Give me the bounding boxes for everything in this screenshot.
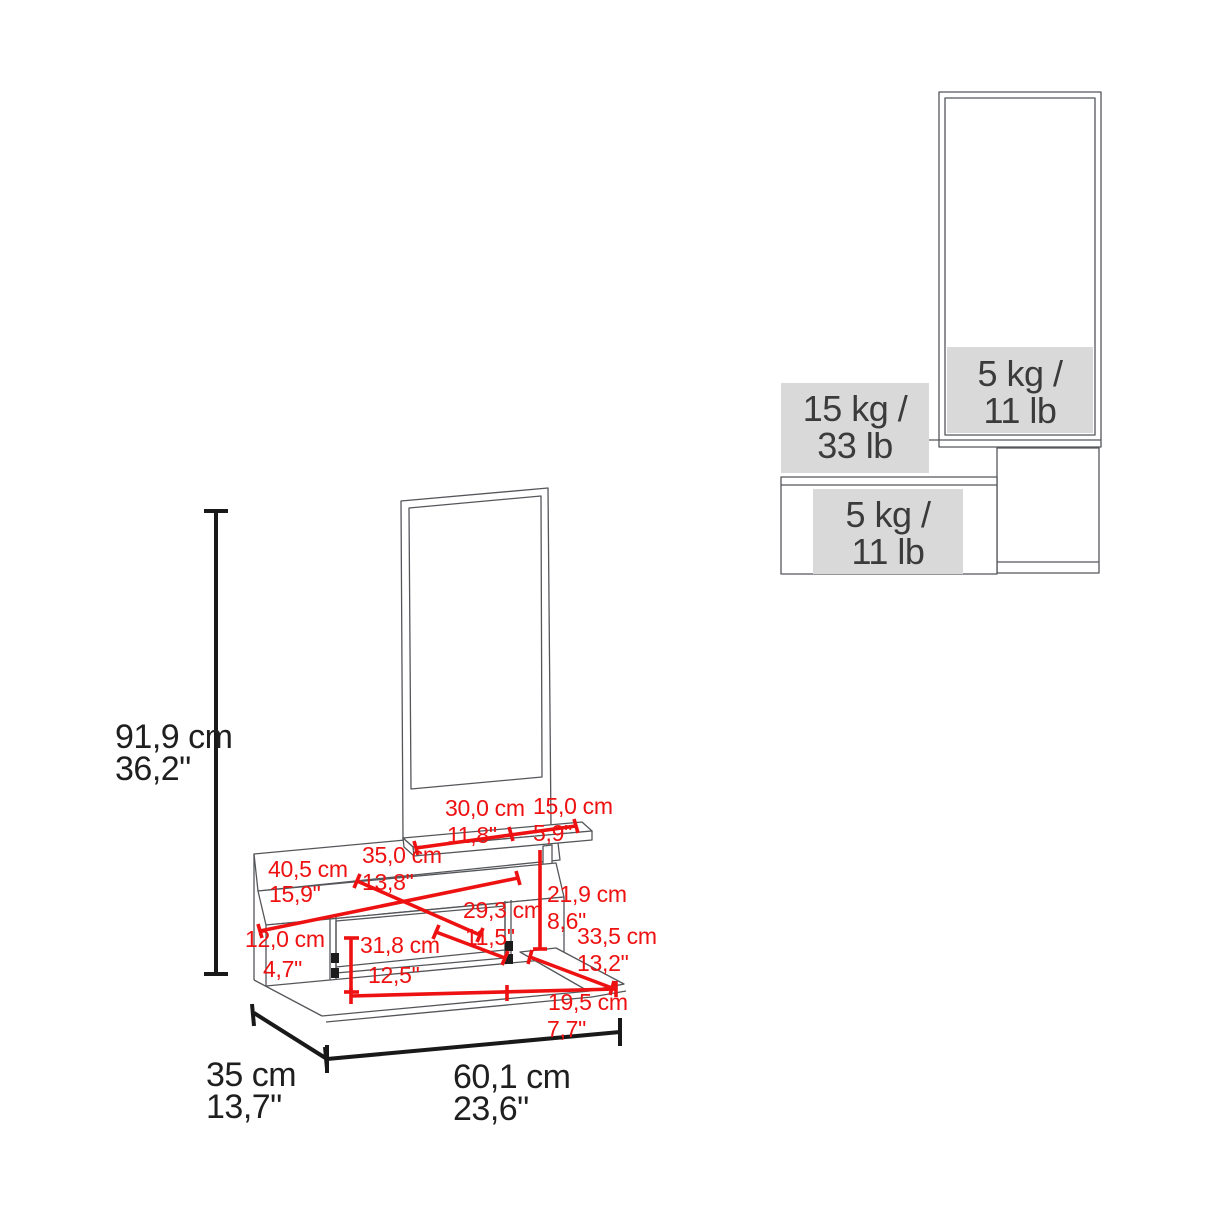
shelf-right-cm: 15,0 cm — [533, 793, 613, 819]
depth-dim-in: 13,7" — [206, 1088, 282, 1126]
mirror-glass — [409, 496, 542, 789]
mirror-shelf-capacity-line1: 5 kg / — [977, 353, 1063, 394]
front-view: 91,9 cm 36,2" 35 cm 13,7" 60,1 cm 23,6" … — [115, 488, 657, 1128]
compartment-height-in: 4,7" — [263, 956, 302, 982]
top-depth-in: 13,8" — [362, 869, 414, 895]
shelf-left-cm: 30,0 cm — [445, 795, 525, 821]
diagram-canvas: 91,9 cm 36,2" 35 cm 13,7" 60,1 cm 23,6" … — [0, 0, 1214, 1214]
cabinet-capacity-line2: 11 lb — [852, 531, 925, 572]
lower-shelf-width-cm: 33,5 cm — [577, 923, 657, 949]
side-view: 5 kg / 11 lb 15 kg / 33 lb 5 kg / 11 lb — [781, 92, 1101, 574]
compartment-width-in: 12,5" — [368, 962, 420, 988]
top-width-cm: 40,5 cm — [268, 856, 348, 882]
side-wall-panel — [997, 448, 1099, 573]
mirror-panel — [401, 488, 551, 840]
compartment-depth-cm: 29,3 cm — [463, 897, 543, 923]
shelf-left-in: 11,8" — [447, 822, 497, 848]
top-width-in: 15,9" — [269, 881, 321, 907]
hinge-icon — [331, 968, 339, 978]
cabinet-capacity-line1: 5 kg / — [845, 494, 931, 535]
lower-shelf-width-in: 13,2" — [577, 950, 629, 976]
wall-shelf-capacity-line1: 15 kg / — [803, 388, 908, 429]
lower-shelf-depth-cm: 19,5 cm — [548, 989, 628, 1015]
lower-shelf-depth-in: 7,7" — [547, 1016, 586, 1042]
compartment-depth-in: 11,5" — [465, 924, 515, 950]
height-dim-in: 36,2" — [115, 750, 191, 788]
shelf-right-in: 5,9" — [533, 820, 572, 846]
top-depth-cm: 35,0 cm — [362, 842, 442, 868]
compartment-height-cm: 12,0 cm — [245, 926, 325, 952]
dimension-diagram-page: 91,9 cm 36,2" 35 cm 13,7" 60,1 cm 23,6" … — [0, 0, 1214, 1214]
wall-shelf-capacity-line2: 33 lb — [817, 425, 893, 466]
mirror-shelf-capacity-line2: 11 lb — [984, 390, 1057, 431]
gap-height-cm: 21,9 cm — [547, 881, 627, 907]
compartment-width-cm: 31,8 cm — [360, 932, 440, 958]
hinge-icon — [331, 953, 339, 963]
width-dim-in: 23,6" — [453, 1090, 529, 1128]
